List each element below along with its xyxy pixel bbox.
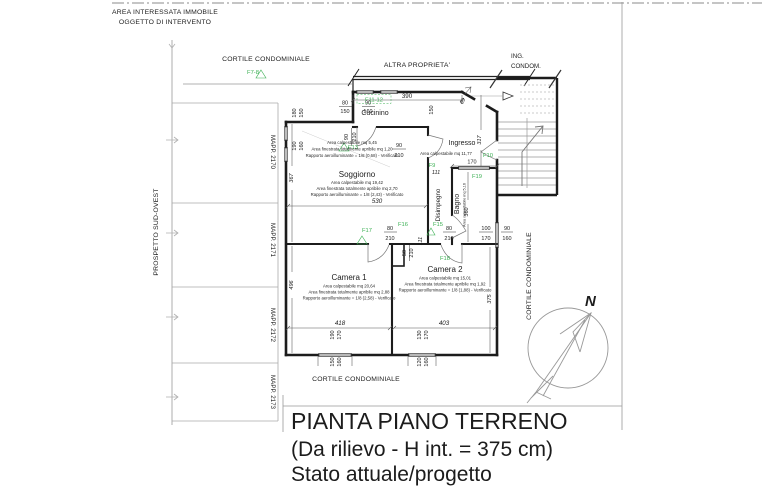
camera1-door-arc [368,244,389,262]
cucinino-info-1: Area calpestabile mq 5,45 [327,140,377,145]
cortile-bottom-label: CORTILE CONDOMINIALE [312,376,400,383]
title-line-2: (Da rilievo - H int. = 375 cm) [291,438,553,461]
dim-camera2-door-w: 80 [446,226,452,232]
mapp-band-lines [172,103,278,421]
cortile-right-label: CORTILE CONDOMINIALE [526,232,533,320]
main-flight-treads [498,118,556,188]
condo-door-icon [503,92,513,100]
dim-win-top1-w: 80 [342,101,348,107]
dim-cam1-win-h: 170 [337,330,343,339]
dim-cam1-win2-h: 160 [337,357,343,366]
camera2-info-1: Area calpestabile mq 15,01 [419,276,472,281]
dim-hall-b: 111 [418,237,424,245]
title-line-1: PIANTA PIANO TERRENO [291,408,567,434]
fixture-tag-f9: F9 [429,163,436,169]
dim-camera1-height: 496 [289,279,295,289]
fixture-tag-f15: F15 [433,222,443,228]
floor-plan-drawing: AREA INTERESSATA IMMOBILE OGGETTO DI INT… [0,0,764,492]
dim-camera1-width: 418 [335,320,346,327]
fixture-tag-f7-8: F7-8 [247,70,259,76]
dim-cam2-win-w: 130 [417,330,423,339]
stair-up-arrow [522,126,543,186]
area-note-line2: OGGETTO DI INTERVENTO [119,19,211,26]
fixture-tag-f16: F16 [398,222,408,228]
dim-camera2-height: 375 [487,293,493,303]
dim-small-door-w: 50 [402,250,408,256]
dim-cam2-win2-h: 160 [424,357,430,366]
dim-win-left2-w: 190 [292,141,298,150]
mapp-2172-label: MAPP. 2172 [269,308,276,342]
dim-camera2-width: 403 [439,320,450,327]
compass-circle [528,308,608,388]
dim-win-left1-w: 180 [292,108,298,117]
room-label-cucinino: Cucinino [361,110,388,117]
floor-plan-sheet: AREA INTERESSATA IMMOBILE OGGETTO DI INT… [0,0,764,492]
mapp-2170-label: MAPP. 2170 [269,135,276,169]
dim-390: 390 [402,93,413,100]
area-note-line1: AREA INTERESSATA IMMOBILE [112,9,218,16]
camera1-info-3: Rapporto aeroilluminante = 1/8 (2,58) - … [303,296,396,301]
dim-bagno-win2-w: 90 [504,226,510,232]
mapp-2171-label: MAPP. 2171 [269,223,276,257]
dim-cam1-win2-w: 150 [330,357,336,366]
bagno-info-1: Area calpestabile mq 5,16 [463,183,467,227]
ingresso-info-1: Area calpestabile mq 11,77 [420,151,472,156]
dim-soggiorno-door-w: 90 [396,143,402,149]
dim-cam2-win-h: 170 [424,330,430,339]
dim-hall-a: 111 [432,170,440,176]
dim-camera2-door-h: 210 [444,236,453,242]
dim-win-left1-h: 150 [299,108,305,117]
north-label: N [585,293,597,310]
soggiorno-info-3: Rapporto aeroilluminante = 1/8 (2,43) - … [311,192,404,197]
prospetto-label: PROSPETTO SUD-OVEST [153,188,160,275]
dim-entry-width: 69 [459,97,467,105]
dim-small-door-h: 210 [409,248,415,257]
altra-proprieta-label: ALTRA PROPRIETA' [384,62,450,69]
north-arrow [527,313,591,403]
dim-camera1-door-w: 80 [387,226,393,232]
soggiorno-info-1: Area calpestabile mq 19,42 [331,180,384,185]
title-line-3: Stato attuale/progetto [291,463,492,486]
room-label-soggiorno: Soggiorno [339,170,376,179]
room-label-camera2: Camera 2 [427,265,463,274]
fixture-tag-f17: F17 [362,228,372,234]
camera1-info-2: Area finestrata totalmente apribile mq 2… [309,290,391,295]
mapp-2173-label: MAPP. 2173 [269,375,276,409]
camera1-info-1: Area calpestabile mq 20,64 [323,284,376,289]
top-arrow [169,40,175,48]
cucinino-info-3: Rapporto aeroilluminante = 1/8 (0,68) - … [306,153,399,158]
cortile-top-label: CORTILE CONDOMINIALE [222,56,310,63]
cucinino-info-2: Area finestrata totalmente apribile mq 1… [312,147,394,152]
dim-camera1-door-h: 210 [385,236,394,242]
upper-flight-treads [520,85,556,113]
north-compass [527,308,608,403]
dim-cucinino-side: 150 [429,105,435,114]
dim-ingresso-length: 317 [477,134,483,144]
dim-bagno-win1-h: 170 [481,236,490,242]
dim-win-left2-h: 160 [299,141,305,150]
camera2-info-2: Area finestrata totalmente apribile mq 1… [405,282,487,287]
dim-soggiorno-width: 530 [372,198,383,205]
dim-cam1-win-w: 190 [330,330,336,339]
fixture-tag-f18: F18 [440,256,450,262]
fixture-tag-f10: F10 [483,153,493,159]
dim-win-top1-h: 150 [340,109,349,115]
dim-cam2-win2-w: 120 [417,357,423,366]
ing-condom-line2: CONDOM. [511,63,541,70]
dim-bagno-win1-w: 100 [481,226,490,232]
fixture-tag-f19: F19 [472,174,482,180]
fixture-tag-f11-12: F11-12 [365,98,383,104]
dim-bagno-win2-h: 160 [502,236,511,242]
condominium-stairs [470,70,561,195]
soggiorno-info-2: Area finestrata totalmente apribile mq 2… [317,186,399,191]
dim-bagno-top: 170 [467,160,476,166]
dim-soggiorno-height: 367 [289,172,295,182]
ing-condom-line1: ING. [511,53,524,60]
camera2-info-3: Rapporto aeroilluminante = 1/8 (1,88) - … [399,288,492,293]
room-label-ingresso: Ingresso [449,140,476,147]
boundary-wall [348,69,535,92]
room-label-camera1: Camera 1 [331,273,367,282]
room-label-disimpegno: Disimpegno [435,188,442,221]
room-label-bagno: Bagno [454,194,461,214]
